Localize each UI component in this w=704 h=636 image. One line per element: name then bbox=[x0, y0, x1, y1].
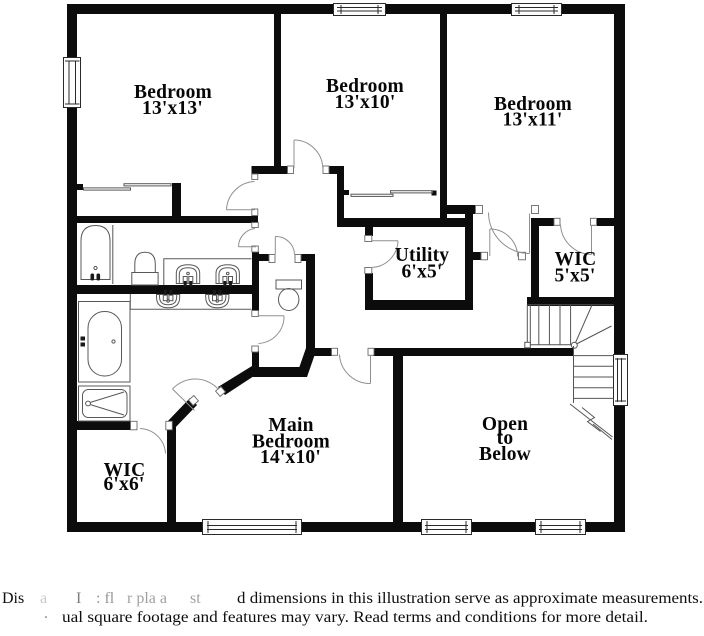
svg-text:Below: Below bbox=[479, 444, 531, 465]
svg-text:ual square footage and feature: ual square footage and features may vary… bbox=[62, 609, 648, 626]
svg-text:.: . bbox=[44, 605, 48, 622]
svg-text:13'x11': 13'x11' bbox=[503, 110, 563, 131]
svg-text:d dimensions in this illustrat: d dimensions in this illustration serve … bbox=[237, 590, 703, 607]
svg-text:6'x6': 6'x6' bbox=[103, 474, 144, 495]
svg-text:5'x5': 5'x5' bbox=[554, 266, 595, 287]
svg-text:6'x5': 6'x5' bbox=[401, 262, 442, 283]
svg-text:Dis: Dis bbox=[2, 590, 24, 607]
svg-text:13'x13': 13'x13' bbox=[142, 98, 203, 119]
svg-text:14'x10': 14'x10' bbox=[260, 447, 321, 468]
svg-text:13'x10': 13'x10' bbox=[335, 92, 396, 113]
